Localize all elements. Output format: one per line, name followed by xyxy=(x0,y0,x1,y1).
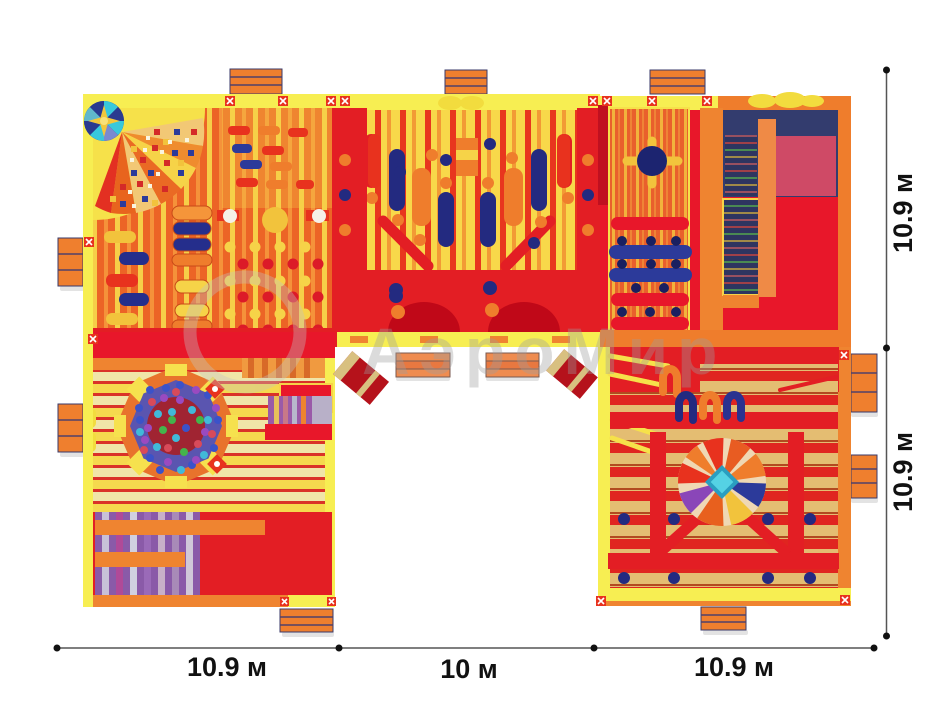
svg-text:АэроМир: АэроМир xyxy=(362,314,726,388)
svg-text:10.9 м: 10.9 м xyxy=(888,173,918,253)
svg-text:10 м: 10 м xyxy=(440,654,498,684)
svg-text:10.9 м: 10.9 м xyxy=(888,432,918,512)
svg-text:10.9 м: 10.9 м xyxy=(187,652,267,682)
svg-text:10.9 м: 10.9 м xyxy=(694,652,774,682)
